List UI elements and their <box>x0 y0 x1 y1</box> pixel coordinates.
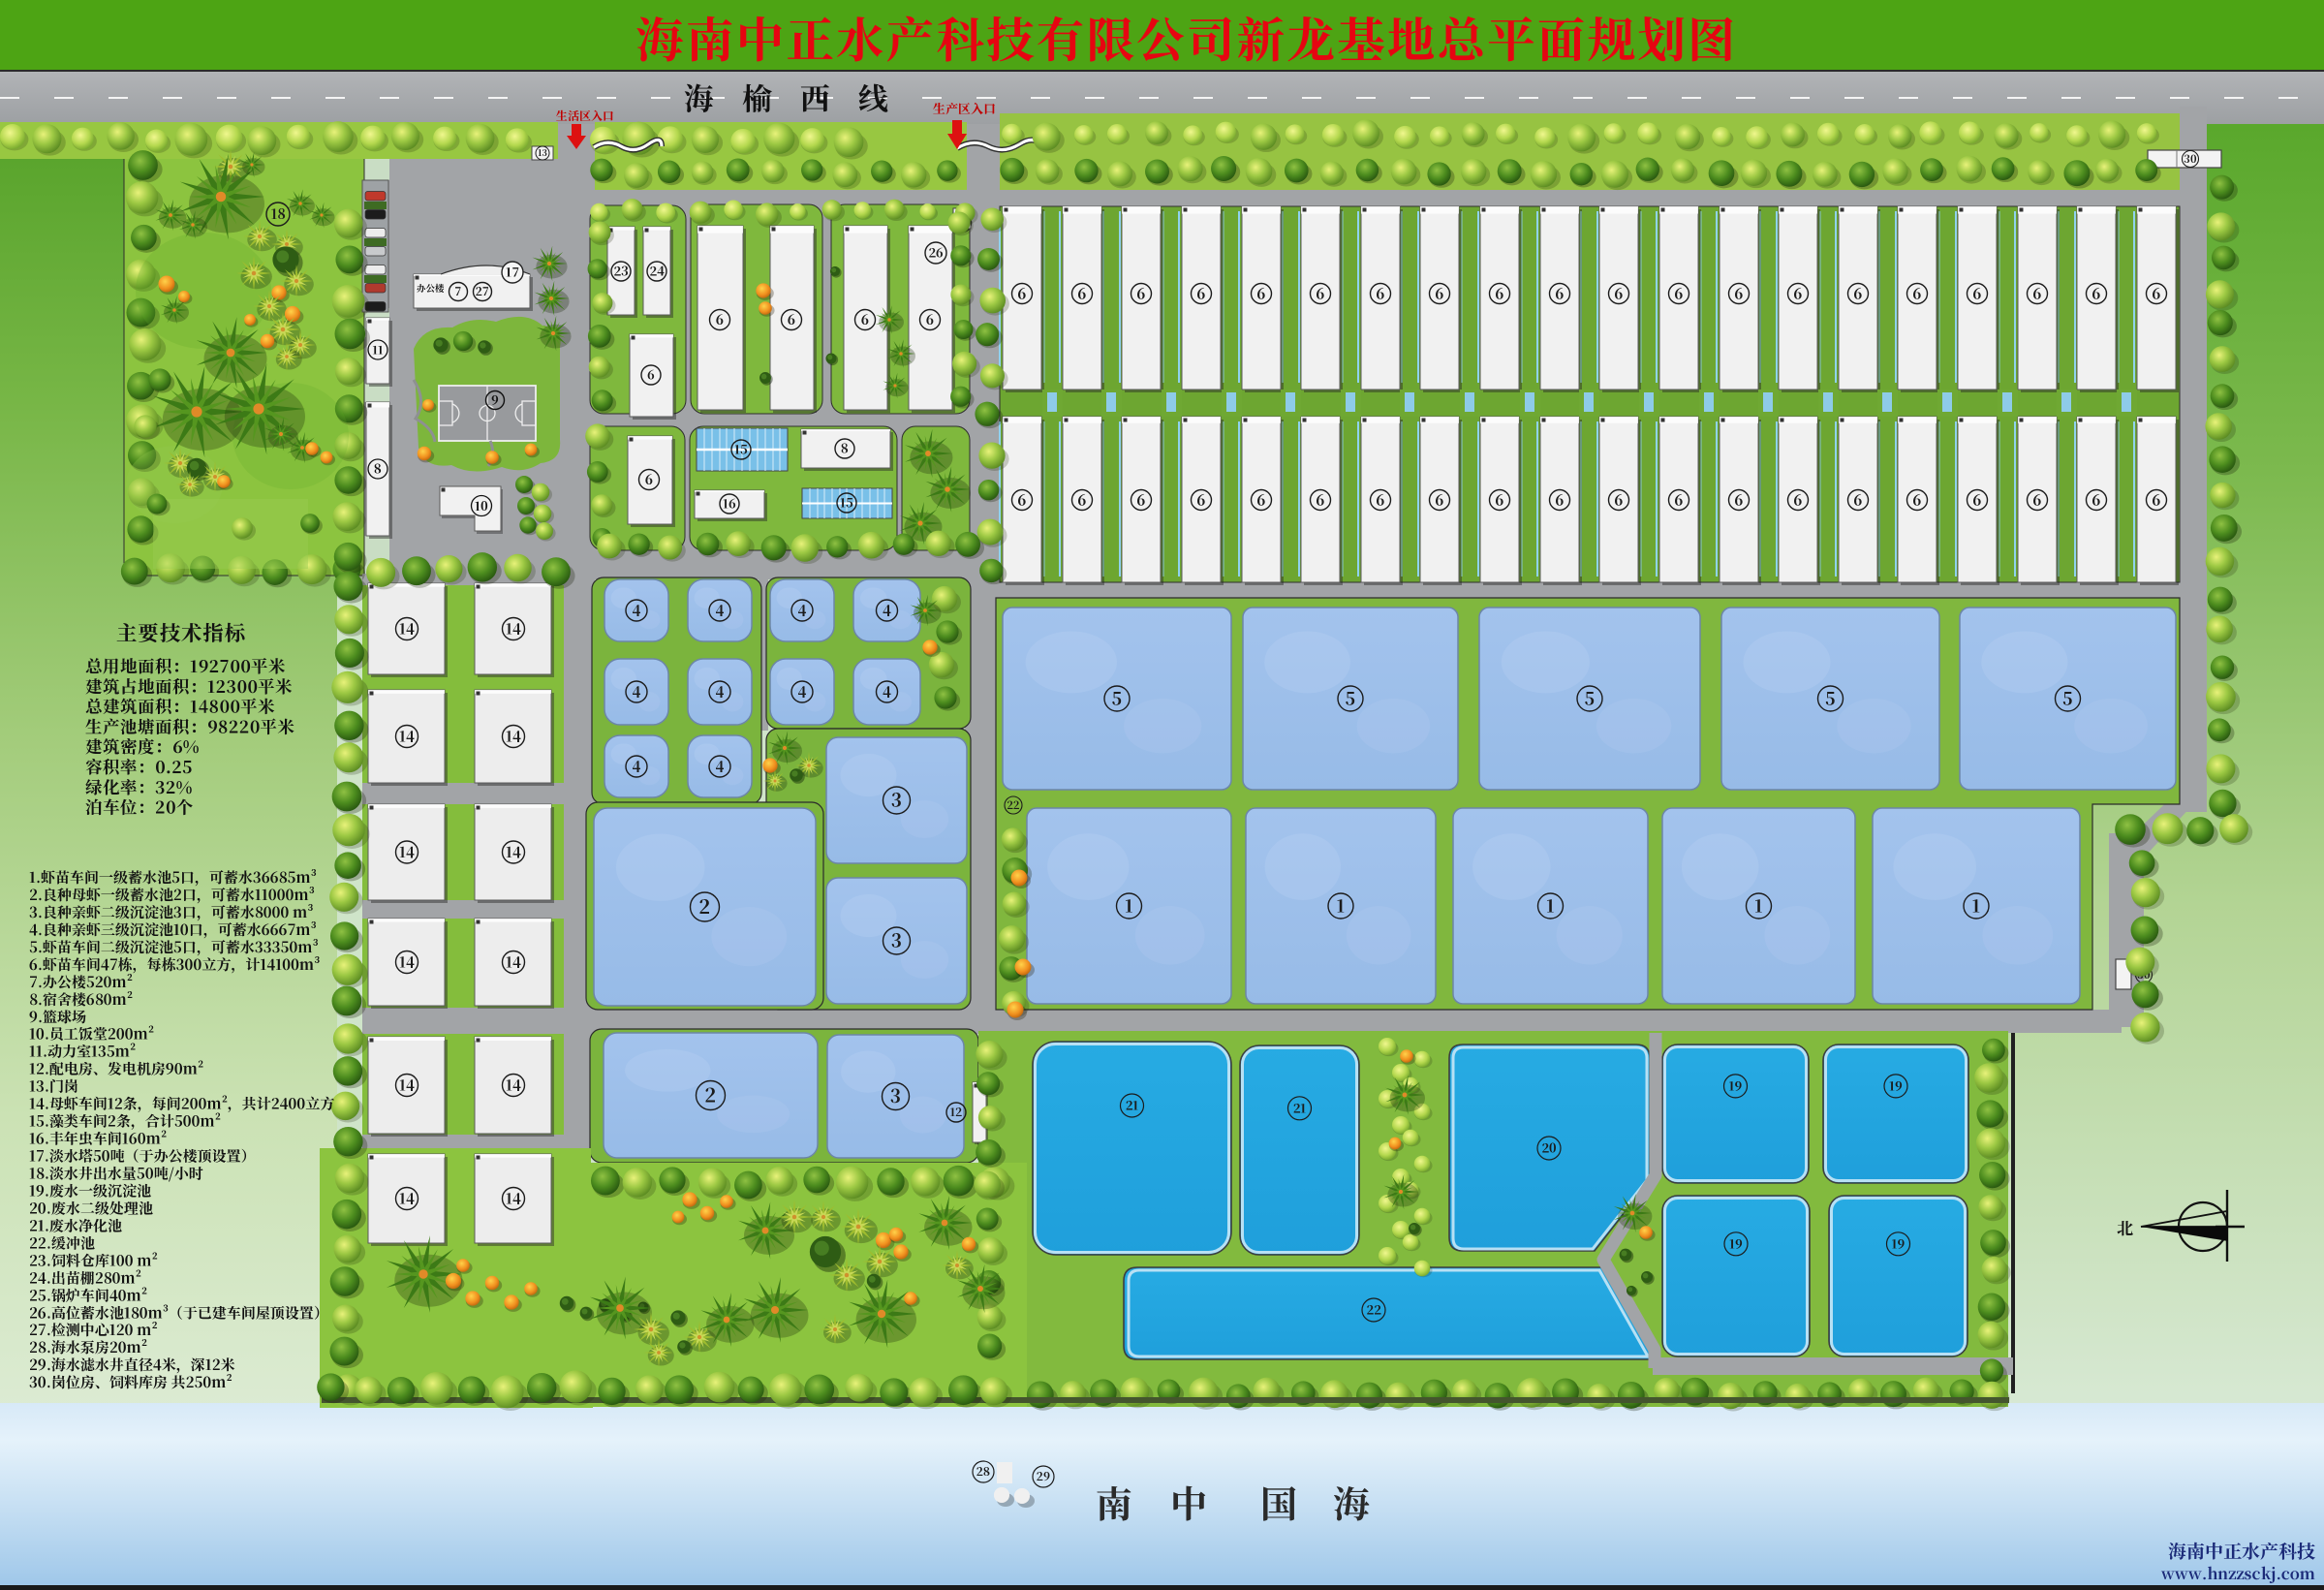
svg-text:6: 6 <box>1913 489 1922 510</box>
svg-text:29: 29 <box>1037 1468 1050 1484</box>
svg-text:6: 6 <box>1436 489 1444 510</box>
svg-text:1: 1 <box>1125 892 1132 918</box>
svg-text:6: 6 <box>1735 489 1744 510</box>
svg-text:15: 15 <box>734 440 748 458</box>
svg-text:6: 6 <box>1854 489 1863 510</box>
svg-text:18: 18 <box>271 204 286 224</box>
svg-text:6: 6 <box>1735 283 1744 303</box>
svg-text:21: 21 <box>1293 1098 1307 1116</box>
svg-text:30: 30 <box>2184 151 2197 167</box>
svg-text:国: 国 <box>1260 1475 1297 1528</box>
svg-text:17: 17 <box>506 263 519 281</box>
svg-text:生活区入口: 生活区入口 <box>556 108 614 124</box>
svg-text:7: 7 <box>454 283 461 299</box>
svg-text:海: 海 <box>684 75 714 118</box>
svg-text:5: 5 <box>1346 685 1356 710</box>
svg-text:www.hnzzsckj.com: www.hnzzsckj.com <box>2160 1562 2315 1584</box>
svg-text:6: 6 <box>1556 489 1565 510</box>
svg-text:19: 19 <box>1729 1076 1743 1094</box>
svg-text:6: 6 <box>647 365 655 384</box>
svg-text:6: 6 <box>1973 489 1982 510</box>
svg-text:4: 4 <box>798 681 807 701</box>
svg-text:海南中正水产科技有限公司新龙基地总平面规划图: 海南中正水产科技有限公司新龙基地总平面规划图 <box>635 3 1737 72</box>
svg-text:16: 16 <box>723 494 736 513</box>
svg-text:6: 6 <box>2033 283 2042 303</box>
svg-text:30.岗位房、饲料库房 共250m²: 30.岗位房、饲料库房 共250m² <box>29 1372 232 1392</box>
svg-text:6: 6 <box>861 310 869 329</box>
svg-text:1: 1 <box>1754 892 1762 918</box>
svg-text:6: 6 <box>2092 489 2101 510</box>
svg-text:6: 6 <box>1137 283 1146 303</box>
svg-text:4: 4 <box>716 756 725 776</box>
svg-text:中: 中 <box>1170 1475 1207 1528</box>
svg-text:4: 4 <box>716 681 725 701</box>
svg-text:6: 6 <box>2153 489 2161 510</box>
svg-text:4: 4 <box>883 681 891 701</box>
svg-text:4: 4 <box>633 681 641 701</box>
svg-text:4: 4 <box>798 600 807 620</box>
svg-text:4: 4 <box>633 600 641 620</box>
svg-text:14: 14 <box>399 1075 415 1095</box>
svg-text:19: 19 <box>1892 1233 1906 1252</box>
svg-text:6: 6 <box>1436 283 1444 303</box>
svg-text:5: 5 <box>1825 685 1836 710</box>
svg-text:22: 22 <box>1007 797 1019 813</box>
svg-text:生产区入口: 生产区入口 <box>932 99 996 117</box>
svg-text:8: 8 <box>841 439 849 457</box>
svg-text:6: 6 <box>1794 489 1803 510</box>
svg-text:12: 12 <box>950 1104 963 1120</box>
svg-text:海南中正水产科技: 海南中正水产科技 <box>2168 1538 2315 1564</box>
svg-text:6: 6 <box>1675 489 1684 510</box>
svg-text:6: 6 <box>1854 283 1863 303</box>
svg-text:13: 13 <box>538 146 547 159</box>
svg-text:6: 6 <box>1377 283 1385 303</box>
svg-text:2: 2 <box>705 1080 717 1108</box>
svg-text:6: 6 <box>1794 283 1803 303</box>
svg-text:6: 6 <box>1973 283 1982 303</box>
svg-text:4: 4 <box>716 600 725 620</box>
svg-text:10: 10 <box>475 496 488 514</box>
svg-text:6: 6 <box>1197 489 1206 510</box>
svg-text:4: 4 <box>883 600 891 620</box>
svg-text:14: 14 <box>506 618 521 639</box>
svg-text:9: 9 <box>491 390 499 409</box>
svg-text:泊车位：20个: 泊车位：20个 <box>85 795 194 820</box>
svg-text:6: 6 <box>1496 283 1504 303</box>
svg-text:6: 6 <box>2092 283 2101 303</box>
svg-text:主要技术指标: 主要技术指标 <box>116 617 246 647</box>
svg-text:19: 19 <box>1889 1076 1903 1094</box>
svg-text:22: 22 <box>1366 1300 1380 1319</box>
svg-text:14: 14 <box>399 842 415 862</box>
svg-text:4: 4 <box>633 756 641 776</box>
svg-text:14: 14 <box>506 1188 521 1208</box>
svg-text:6: 6 <box>788 310 795 329</box>
svg-text:6: 6 <box>1317 489 1325 510</box>
svg-text:26: 26 <box>928 243 944 262</box>
svg-text:6: 6 <box>1257 489 1266 510</box>
svg-text:14: 14 <box>399 726 415 746</box>
svg-text:20: 20 <box>1541 1138 1557 1157</box>
svg-text:3: 3 <box>891 787 902 813</box>
svg-text:23: 23 <box>613 262 628 280</box>
svg-text:15: 15 <box>840 493 853 512</box>
svg-text:14: 14 <box>399 1188 415 1208</box>
svg-text:24: 24 <box>649 262 666 280</box>
svg-text:6: 6 <box>2033 489 2042 510</box>
svg-text:2: 2 <box>699 891 711 920</box>
svg-text:6: 6 <box>1078 489 1087 510</box>
svg-text:南: 南 <box>1096 1475 1132 1528</box>
svg-text:西: 西 <box>800 75 830 118</box>
svg-text:5: 5 <box>1112 685 1123 710</box>
svg-text:6: 6 <box>1137 489 1146 510</box>
svg-text:19: 19 <box>1729 1233 1743 1252</box>
svg-text:6: 6 <box>1675 283 1684 303</box>
svg-text:6: 6 <box>1197 283 1206 303</box>
svg-text:6: 6 <box>1078 283 1087 303</box>
svg-text:6: 6 <box>1018 489 1027 510</box>
svg-text:6: 6 <box>1377 489 1385 510</box>
svg-text:14: 14 <box>399 618 415 639</box>
svg-text:办公楼: 办公楼 <box>417 281 445 295</box>
svg-text:14: 14 <box>399 951 415 972</box>
svg-text:6: 6 <box>1257 283 1266 303</box>
svg-text:5: 5 <box>1585 685 1596 710</box>
svg-text:6: 6 <box>1018 283 1027 303</box>
svg-text:海: 海 <box>1333 1475 1370 1528</box>
svg-text:1: 1 <box>1972 892 1980 918</box>
svg-text:6: 6 <box>1615 489 1624 510</box>
svg-text:3: 3 <box>890 1082 901 1108</box>
svg-text:北: 北 <box>2117 1215 2133 1239</box>
svg-text:线: 线 <box>858 75 888 118</box>
svg-text:6: 6 <box>2153 283 2161 303</box>
svg-text:6: 6 <box>1615 283 1624 303</box>
svg-text:27: 27 <box>476 283 489 299</box>
svg-text:榆: 榆 <box>742 75 772 118</box>
svg-text:14: 14 <box>506 951 521 972</box>
svg-text:8: 8 <box>374 459 382 478</box>
svg-text:3: 3 <box>891 927 902 953</box>
svg-text:28: 28 <box>976 1463 990 1480</box>
svg-text:6: 6 <box>1317 283 1325 303</box>
svg-text:6: 6 <box>926 310 934 329</box>
svg-text:5: 5 <box>2062 685 2073 710</box>
svg-text:1: 1 <box>1546 892 1554 918</box>
svg-text:14: 14 <box>506 1075 521 1095</box>
svg-text:6: 6 <box>716 310 724 329</box>
svg-text:14: 14 <box>506 726 521 746</box>
svg-text:1: 1 <box>1337 892 1345 918</box>
svg-text:11: 11 <box>372 342 384 359</box>
svg-text:14: 14 <box>506 842 521 862</box>
svg-text:6: 6 <box>1913 283 1922 303</box>
svg-text:6: 6 <box>1496 489 1504 510</box>
svg-text:6: 6 <box>645 470 653 489</box>
svg-text:6: 6 <box>1556 283 1565 303</box>
svg-text:21: 21 <box>1126 1096 1139 1114</box>
